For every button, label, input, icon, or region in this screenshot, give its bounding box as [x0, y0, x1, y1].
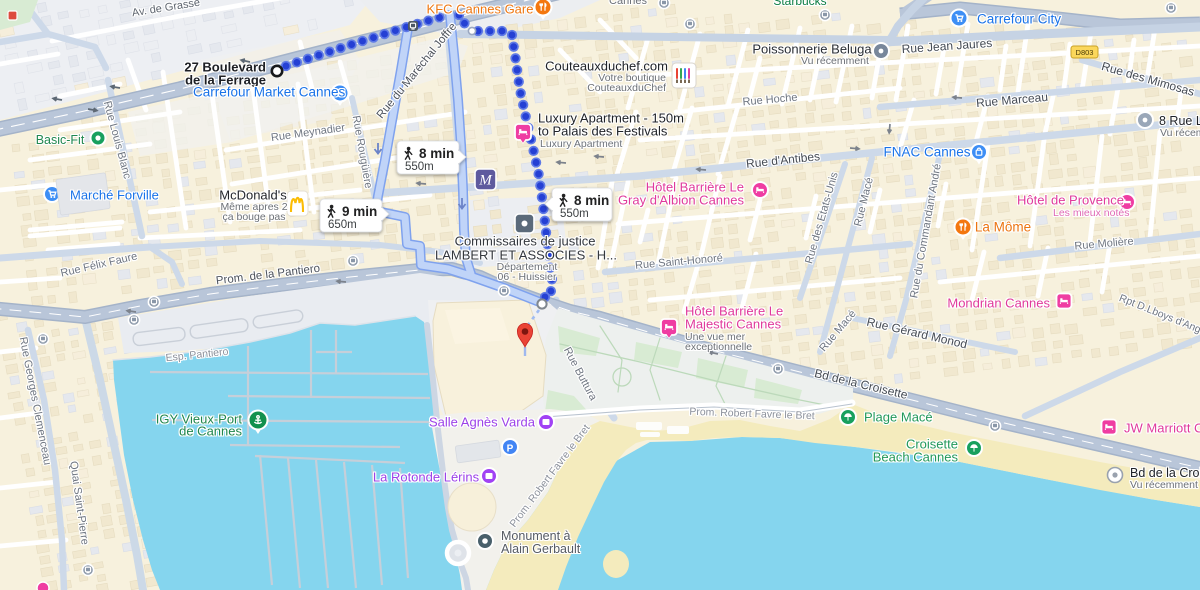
- svg-text:650m: 650m: [328, 219, 357, 231]
- svg-text:P: P: [507, 444, 514, 455]
- svg-text:8 min: 8 min: [574, 193, 609, 208]
- svg-text:550m: 550m: [405, 161, 434, 173]
- svg-text:9 min: 9 min: [342, 204, 377, 219]
- svg-text:8 min: 8 min: [419, 146, 454, 161]
- svg-text:550m: 550m: [560, 208, 589, 220]
- svg-text:M: M: [478, 173, 493, 189]
- svg-text:D803: D803: [1076, 48, 1094, 57]
